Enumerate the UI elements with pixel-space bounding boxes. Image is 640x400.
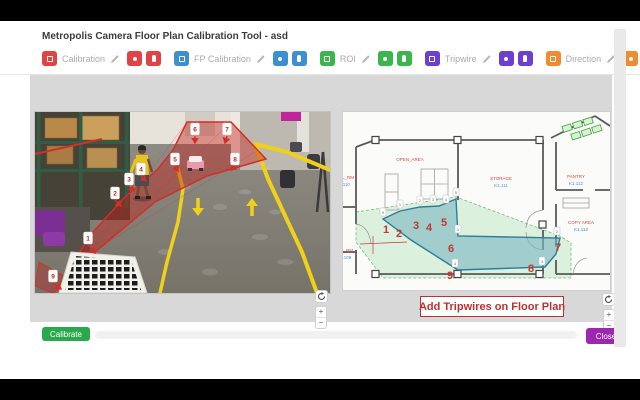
- horizontal-scrollbar[interactable]: [95, 331, 577, 339]
- camera-marker-1[interactable]: 1: [84, 232, 93, 244]
- camera-image[interactable]: 1 2 3 4 5 6: [35, 112, 330, 293]
- toolbar-group-fp-calibration: FP Calibration: [174, 51, 307, 66]
- room-id-pantry: K1.112: [569, 181, 583, 186]
- svg-text:2: 2: [556, 230, 558, 234]
- fp-calibration-point-button[interactable]: [273, 51, 288, 66]
- camera-marker-3[interactable]: 3: [125, 173, 134, 185]
- roi-label: ROI: [340, 54, 356, 64]
- tripwire-edit-pencil-icon[interactable]: [482, 54, 492, 64]
- tripwire-icon[interactable]: [425, 51, 440, 66]
- calibration-edit-pencil-icon[interactable]: [110, 54, 120, 64]
- svg-text:1: 1: [457, 228, 459, 232]
- svg-text:7: 7: [225, 127, 229, 134]
- roi-edit-pencil-icon[interactable]: [361, 54, 371, 64]
- floorplan-panel[interactable]: OPEN_AREA STORAGE K1.111 PANTRY K1.112 C…: [343, 112, 610, 290]
- calibration-checkerboard: [59, 252, 147, 293]
- room-id-left: 1.110: [343, 182, 350, 187]
- tripwire-number-3: 3: [413, 220, 419, 232]
- camera-zoom-in-button[interactable]: +: [316, 307, 326, 318]
- camera-refresh-button[interactable]: [315, 290, 328, 303]
- svg-text:4: 4: [139, 167, 143, 174]
- room-label-copy-area: COPY AREA: [568, 220, 594, 225]
- svg-text:5: 5: [455, 191, 457, 195]
- roi-icon[interactable]: [320, 51, 335, 66]
- tripwire-number-5: 5: [441, 217, 447, 229]
- camera-marker-2[interactable]: 2: [111, 187, 120, 199]
- camera-marker-5[interactable]: 5: [171, 153, 180, 165]
- room-label-left: AL_RM: [343, 175, 354, 180]
- calibration-tool-window: Metropolis Camera Floor Plan Calibration…: [0, 21, 640, 379]
- tripwire-pin-button[interactable]: [518, 51, 533, 66]
- roi-point-button[interactable]: [378, 51, 393, 66]
- svg-text:2: 2: [113, 191, 117, 198]
- room-label-pantry: PANTRY: [567, 174, 585, 179]
- office-chair: [280, 170, 295, 188]
- refresh-arrow-icon: [317, 292, 326, 301]
- room-label-open-area: OPEN_AREA: [396, 157, 424, 162]
- svg-text:9: 9: [51, 274, 55, 281]
- camera-zoom-control: + −: [315, 306, 327, 329]
- toolbar: Calibration FP Calibration: [42, 50, 640, 67]
- svg-text:3: 3: [127, 177, 131, 184]
- add-tripwires-banner: Add Tripwires on Floor Plan: [420, 296, 564, 317]
- refresh-arrow-icon: [604, 295, 613, 304]
- tripwire-number-9: 9: [447, 270, 453, 282]
- fp-calibration-edit-pencil-icon[interactable]: [256, 54, 266, 64]
- calibration-pin-button[interactable]: [146, 51, 161, 66]
- direction-icon[interactable]: [546, 51, 561, 66]
- svg-text:2: 2: [419, 199, 421, 203]
- roi-pin-button[interactable]: [397, 51, 412, 66]
- room-id-bottom-left: 1.108: [343, 255, 352, 260]
- camera-marker-9[interactable]: 9: [49, 270, 58, 282]
- floorplan-image[interactable]: OPEN_AREA STORAGE K1.111 PANTRY K1.112 C…: [343, 112, 610, 290]
- fp-green-furniture: [562, 115, 602, 142]
- tripwire-point-button[interactable]: [499, 51, 514, 66]
- camera-marker-6[interactable]: 6: [191, 123, 200, 135]
- svg-text:4: 4: [454, 262, 456, 266]
- screen: Metropolis Camera Floor Plan Calibration…: [0, 0, 640, 400]
- calibration-point-button[interactable]: [127, 51, 142, 66]
- magenta-object: [281, 112, 301, 121]
- fp-calibration-label: FP Calibration: [194, 54, 251, 64]
- svg-text:8: 8: [233, 157, 237, 164]
- page-scrollbar[interactable]: [614, 29, 626, 347]
- tripwire-label: Tripwire: [445, 54, 477, 64]
- toolbar-group-tripwire: Tripwire: [425, 51, 533, 66]
- calibration-icon[interactable]: [42, 51, 57, 66]
- fp-calibration-icon[interactable]: [174, 51, 189, 66]
- room-label-storage: STORAGE: [490, 176, 512, 181]
- svg-text:1: 1: [399, 203, 401, 207]
- fp-calibration-pin-button[interactable]: [292, 51, 307, 66]
- delivery-robot: [187, 156, 204, 171]
- camera-marker-4[interactable]: 4: [137, 163, 146, 175]
- svg-text:6: 6: [193, 127, 197, 134]
- calibrate-button[interactable]: Calibrate: [42, 327, 90, 341]
- svg-text:1: 1: [86, 236, 90, 243]
- calibration-label: Calibration: [62, 54, 105, 64]
- tripwire-number-7: 7: [555, 242, 561, 254]
- camera-view-panel[interactable]: 1 2 3 4 5 6: [35, 112, 330, 293]
- camera-zoom-out-button[interactable]: −: [316, 318, 326, 328]
- direction-label: Direction: [566, 54, 602, 64]
- svg-text:3: 3: [432, 198, 434, 202]
- floorplan-zoom-in-button[interactable]: +: [604, 310, 614, 321]
- svg-text:5: 5: [173, 157, 177, 164]
- camera-marker-8[interactable]: 8: [231, 153, 240, 165]
- room-id-copy-area: K1.112: [574, 227, 588, 232]
- tripwire-number-6: 6: [448, 243, 454, 255]
- page-title: Metropolis Camera Floor Plan Calibration…: [42, 31, 288, 42]
- camera-marker-7[interactable]: 7: [223, 123, 232, 135]
- room-label-bottom-left: G_RM: [343, 248, 353, 253]
- toolbar-group-roi: ROI: [320, 51, 412, 66]
- svg-text:4: 4: [445, 198, 447, 202]
- room-id-storage: K1.111: [494, 183, 508, 188]
- svg-text:0: 0: [382, 211, 384, 215]
- svg-text:3: 3: [541, 260, 543, 264]
- tripwire-number-8: 8: [528, 263, 534, 275]
- toolbar-group-calibration: Calibration: [42, 51, 161, 66]
- tripwire-number-1: 1: [383, 224, 389, 236]
- tripwire-number-4: 4: [426, 222, 433, 234]
- tripwire-number-2: 2: [396, 228, 402, 240]
